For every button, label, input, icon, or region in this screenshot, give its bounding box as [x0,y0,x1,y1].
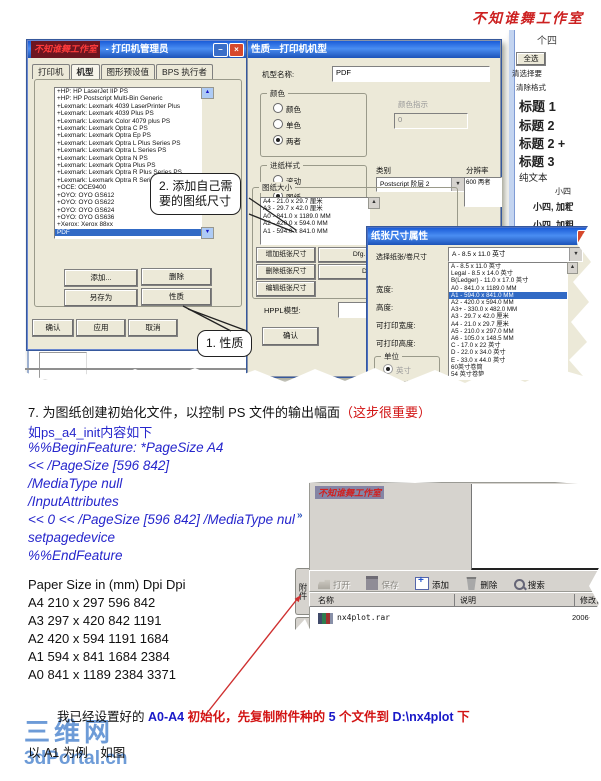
instruction-path: D:\nx4plot [392,710,457,724]
style-item[interactable]: 小四, 加粗 [533,200,574,213]
model-name-label: 机型名称: [262,69,294,80]
printer-list-item[interactable]: PDF [55,229,201,236]
tab[interactable]: 图形预设值 [101,64,156,79]
style-item[interactable]: 小四 [555,186,571,197]
select-paper-label: 选择纸张/卷尺寸 [376,252,427,262]
color-group-label: 颜色 [267,88,288,99]
minimize-button[interactable]: – [213,43,228,57]
column-divider [574,594,575,606]
code-intro: 如ps_a4_init内容如下 [28,422,152,441]
step7-text: 7. 为图纸创建初始化文件，以控制 PS 文件的输出幅面 [28,405,340,420]
radio-label: 毫米 [396,380,411,389]
style-item[interactable]: 清除格式 [516,82,546,93]
radio-color[interactable] [273,103,283,113]
tab-bar: 打印机机型图形预设值BPS 执行者 [32,62,242,78]
add-paper-size-button[interactable]: 增加纸张尺寸 [256,247,316,263]
column-desc[interactable]: 说明 [460,595,476,606]
printer-list-item[interactable]: +HP: HP Postscript Multi-Bin Generic [55,95,201,102]
select-all-button[interactable]: 全选 [516,52,546,66]
file-date: 2006-12 [572,613,600,622]
dialog-titlebar[interactable]: 性质—打印机机型 [248,41,500,58]
step7-important: （这步很重要） [340,405,431,420]
printer-list-item[interactable]: +Lexmark: Lexmark Color 4079 plus PS [55,118,201,125]
paper-table-row: A2 420 x 594 1191 1684 [28,631,176,649]
dialog-title: 性质—打印机机型 [251,44,327,55]
bottom-instruction: 我已经设置好的 A0-A4 初始化，先复制附件种的 5 个文件到 D:\nx4p… [57,706,470,725]
add-button[interactable]: 添加... [64,269,138,287]
radio-mono[interactable] [273,119,283,129]
delete-button[interactable]: 删除 [141,268,212,286]
style-heading2[interactable]: 标题 2 [519,115,554,134]
scrollbar-strip[interactable] [509,30,515,240]
paper-size-item[interactable]: A3 - 29.7 x 42.0 厘米 [261,205,369,212]
instruction-red: 初始化，先复制附件种的 [188,710,329,724]
edit-paper-size-button[interactable]: 编辑纸张尺寸 [256,281,316,297]
properties-button[interactable]: 性质 [141,288,212,306]
tab[interactable]: 打印机 [32,64,70,79]
search-button[interactable]: 搜索 [514,579,545,591]
dropdown-option[interactable]: A4 - 21.0 x 29.7 厘米 [449,321,567,328]
paper-size-properties-dialog: 纸张尺寸属性 × 选择纸张/卷尺寸 宽度: 高度: 可打印宽度: 可打印高度: … [367,227,595,397]
printer-list-item[interactable]: +HP: HP LaserJet IIP PS [55,88,201,95]
dropdown-option[interactable]: 60英寸卷筒 [449,364,567,371]
page: { "icons": {"close":"×","minimize":"–","… [0,0,601,781]
paper-table: A4 210 x 297 596 842A3 297 x 420 842 119… [28,595,176,685]
callout-add-paper-note: 2. 添加自己需 要的图纸尺寸 [150,173,241,215]
dropdown-option[interactable]: A2 - 420.0 x 594.0 MM [449,299,567,306]
dialog-title: - 打印机管理员 [106,44,169,55]
unit-group-label: 单位 [381,351,402,362]
color-group: 颜色 颜色 单色 两者 [260,93,367,157]
height-label: 高度: [376,302,393,313]
style-plaintext[interactable]: 纯文本 [519,170,548,184]
resolution-list[interactable]: 600 两者 [464,177,502,207]
printer-list-item[interactable]: +Xerox: Xerox 88xx [55,221,201,228]
site-watermark: 不知谁舞工作室 [472,8,584,28]
preview-pane [471,484,601,571]
printer-list-item[interactable]: +OYO: OYO GS636 [55,214,201,221]
radio-both[interactable] [273,135,283,145]
radio-label: 英寸 [396,366,411,375]
paper-table-row: A4 210 x 297 596 842 [28,595,176,613]
printer-list[interactable]: +HP: HP LaserJet IIP PS+HP: HP Postscrip… [54,87,202,239]
open-icon [318,579,330,590]
printer-list-item[interactable]: +Lexmark: Lexmark Optra L Plus Series PS [55,140,201,147]
paper-size-list[interactable]: A4 - 21.0 x 29.7 厘米A3 - 29.7 x 42.0 厘米A0… [260,197,370,245]
feed-group-label: 进纸样式 [267,160,303,171]
window-divider [25,384,565,386]
printer-list-item[interactable]: +Lexmark: Lexmark 4039 Plus PS [55,110,201,117]
scroll-up-icon[interactable]: ▲ [567,262,578,274]
dropdown-option[interactable]: A3 - 29.7 x 42.0 厘米 [449,313,567,320]
callout-properties-note: 1. 性质 [197,330,252,357]
close-icon[interactable]: × [229,43,244,57]
dropdown-option[interactable]: B(Ledger) - 11.0 x 17.0 英寸 [449,277,567,284]
titlebar-watermark: 不知谁舞工作室 [31,41,100,58]
paper-size-item[interactable]: A0 - 841.0 x 1189.0 MM [261,213,369,220]
chevron-down-icon[interactable]: ▼ [569,248,582,261]
column-divider [454,594,455,606]
dropdown-option[interactable]: A5 - 210.0 x 297.0 MM [449,328,567,335]
instruction-black: 我已经设置好的 [57,710,148,724]
list-header: 名称 说明 修改日期 [309,592,601,607]
dialog-title: 纸张尺寸属性 [371,231,428,242]
paper-size-dropdown[interactable]: A - 8.5 x 11.0 英寸Legal - 8.5 x 14.0 英寸B(… [448,262,568,380]
scroll-down-icon[interactable]: ▼ [201,227,214,239]
screenshot-attachment-panel: 不知谁舞工作室 » 附件 附件 打开 保存 添加 删除 搜索 名称 说明 修改日… [295,478,601,705]
paper-size-combo-value: A - 8.5 x 11.0 英寸 [452,251,505,258]
printable-height-label: 可打印高度: [376,338,416,349]
attachment-toolbar: 打开 保存 添加 删除 搜索 [309,570,601,592]
radio-mm[interactable] [383,378,393,388]
scroll-up-icon[interactable]: ▲ [201,87,214,99]
document-rect [39,352,87,380]
screenshot-printer-dialogs: 个四 全选 清选择要 清除格式 标题 1 标题 2 标题 2 + 标题 3 纯文… [25,30,601,395]
dialog-titlebar[interactable]: 不知谁舞工作室 - 打印机管理员 – × [28,41,246,58]
width-label: 宽度: [376,284,393,295]
trash-icon [465,577,477,590]
tab[interactable]: BPS 执行者 [156,64,213,79]
category-label: 类别 [376,165,391,176]
paper-table-row: A3 297 x 420 842 1191 [28,613,176,631]
paper-size-group-label: 图纸大小 [259,182,295,193]
paper-size-item[interactable]: A2 - 420.0 x 594.0 MM [261,220,369,227]
color-indicator-field: 0 [394,113,468,129]
printer-list-item[interactable]: +Lexmark: Lexmark Optra C PS [55,125,201,132]
ok-button[interactable]: 确认 [262,327,319,346]
word-styles-fragment: 个四 全选 清选择要 清除格式 标题 1 标题 2 标题 2 + 标题 3 纯文… [509,30,601,240]
ok-button[interactable]: 确认 [32,319,74,337]
hppl-model-label: HPPL模型: [264,305,301,316]
instruction-red: 下 [457,710,470,724]
paper-size-item[interactable]: A1 - 594.0 x 841.0 MM [261,228,369,235]
dropdown-option[interactable]: A1 - 594.0 x 841.0 MM [449,292,567,299]
code-line: << /PageSize [596 842] [28,458,588,476]
dropdown-option[interactable]: D - 22.0 x 34.0 英寸 [449,349,567,356]
save-icon [366,576,378,590]
style-item[interactable]: 清选择要 [512,68,542,79]
printer-list-item[interactable]: +Lexmark: Lexmark Optra L Series PS [55,147,201,154]
delete-button[interactable]: 删除 [465,577,497,591]
paper-table-row: A1 594 x 841 1684 2384 [28,649,176,667]
save-as-button[interactable]: 另存为 [64,289,138,307]
style-heading1[interactable]: 标题 1 [519,96,556,115]
radio-label: 单色 [286,121,301,130]
color-indicator-label: 颜色指示 [398,99,428,110]
resolution-label: 分辨率 [466,165,489,176]
style-heading2plus[interactable]: 标题 2 + [519,133,565,152]
unit-group: 单位 英寸 毫米 [374,356,440,394]
panel-watermark: 不知谁舞工作室 [315,486,384,499]
printer-list-item[interactable]: +Lexmark: Lexmark Optra N PS [55,155,201,162]
dialog-titlebar[interactable]: 纸张尺寸属性 × [368,228,594,245]
open-button: 打开 [318,579,350,591]
radio-inch[interactable] [383,364,393,374]
dropdown-option[interactable]: A0 - 841.0 x 1189.0 MM [449,285,567,292]
paper-table-row: A0 841 x 1189 2384 3371 [28,667,176,685]
add-icon [415,577,429,590]
rar-file-icon [318,613,333,624]
scroll-up-icon[interactable]: ▲ [368,197,380,209]
printable-width-label: 可打印宽度: [376,320,416,331]
chevron-icon[interactable]: » [297,510,303,521]
instruction-blue: A0-A4 [148,710,188,724]
search-icon [514,579,525,590]
file-list: nx4plot.rar 2006-12 [309,607,601,705]
code-line: %%BeginFeature: *PageSize A4 [28,440,588,458]
column-name[interactable]: 名称 [318,595,334,606]
printer-list-item[interactable]: +Lexmark: Lexmark 4039 LaserPrinter Plus [55,103,201,110]
style-heading3[interactable]: 标题 3 [519,151,554,170]
dropdown-option[interactable]: E - 33.0 x 44.0 英寸 [449,357,567,364]
instruction-red: 个文件到 [339,710,392,724]
printer-list-item[interactable]: +Lexmark: Lexmark Optra Ep PS [55,132,201,139]
paper-size-combo[interactable]: A - 8.5 x 11.0 英寸 ▼ [448,247,583,262]
paper-table-header: Paper Size in (mm) Dpi Dpi [28,577,186,592]
model-name-field[interactable]: PDF [332,66,490,82]
apply-button[interactable]: 应用 [76,319,126,337]
radio-label: 两者 [286,137,301,146]
step7-heading: 7. 为图纸创建初始化文件，以控制 PS 文件的输出幅面（这步很重要） [28,402,431,421]
file-name[interactable]: nx4plot.rar [337,613,390,622]
style-partial: 个四 [537,32,557,47]
attachment-tab-1[interactable]: 附件 [295,568,309,615]
save-button: 保存 [366,576,398,591]
delete-paper-size-button[interactable]: 删除纸张尺寸 [256,264,316,280]
attachment-tab-2[interactable]: 附件 [295,617,309,664]
column-date[interactable]: 修改日期 [580,595,601,606]
radio-label: 颜色 [286,105,301,114]
example-caption: 以 A1 为例 如图 [28,742,125,761]
cancel-button[interactable]: 取消 [128,319,178,337]
instruction-blue: 5 [329,710,339,724]
tab[interactable]: 机型 [71,64,100,79]
printer-list-item[interactable]: +Lexmark: Lexmark Optra Plus PS [55,162,201,169]
close-icon[interactable]: × [577,230,592,244]
add-button[interactable]: 添加 [415,577,449,591]
dropdown-option[interactable]: 54 英寸卷筒 [449,371,567,378]
